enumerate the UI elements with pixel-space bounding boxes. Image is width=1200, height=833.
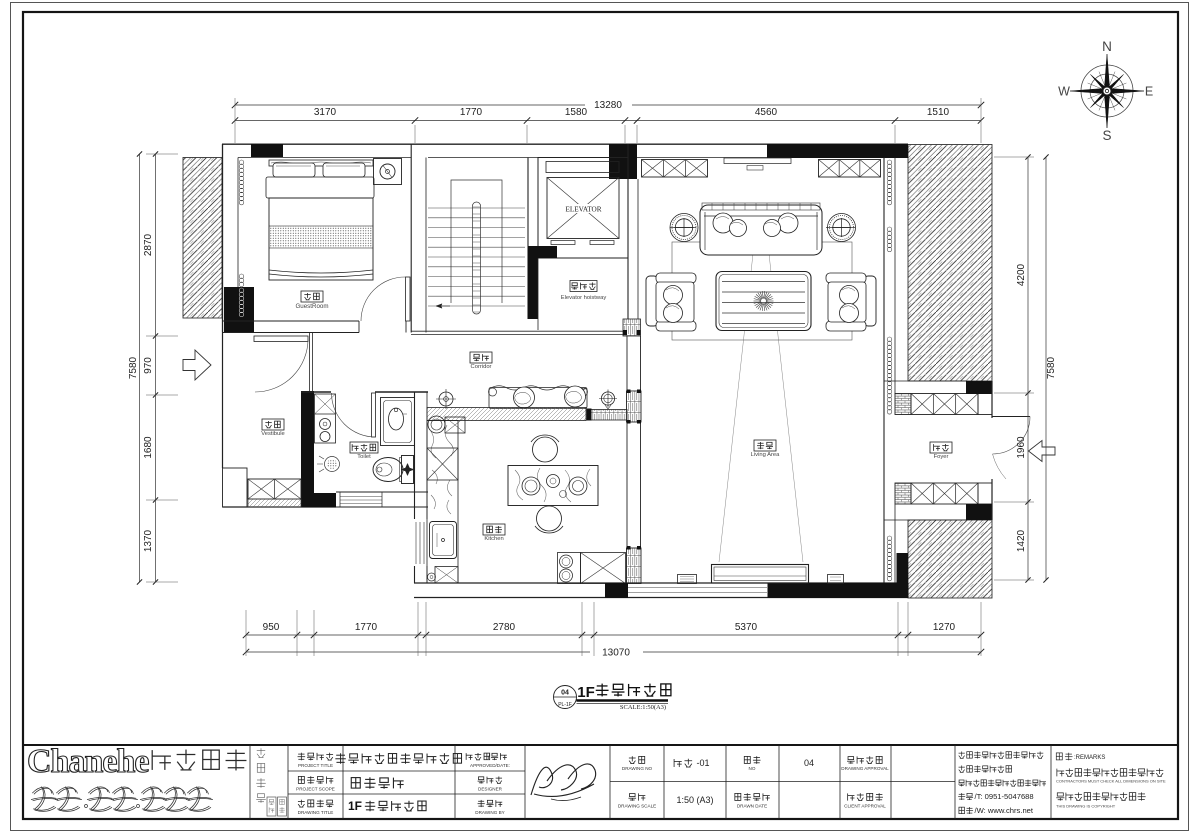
svg-text:DRAWING APPROVAL: DRAWING APPROVAL: [841, 766, 889, 771]
svg-text:2780: 2780: [493, 622, 516, 633]
svg-text:DRAWING NO: DRAWING NO: [622, 766, 653, 771]
svg-text:Elevator hoistway: Elevator hoistway: [561, 295, 607, 301]
svg-text:DRAWING SCALE: DRAWING SCALE: [618, 804, 656, 809]
svg-text:13070: 13070: [602, 648, 630, 659]
svg-text:1420: 1420: [1016, 529, 1027, 552]
svg-text:1960: 1960: [1016, 436, 1027, 459]
svg-text:950: 950: [263, 622, 280, 633]
svg-text:PL-1F: PL-1F: [558, 702, 572, 708]
svg-text:Vestibule: Vestibule: [261, 431, 285, 437]
svg-text:DESIGNER: DESIGNER: [478, 787, 503, 792]
svg-text:1510: 1510: [927, 107, 950, 118]
svg-text:-01: -01: [696, 758, 709, 768]
svg-text:PROJECT SCOPE: PROJECT SCOPE: [296, 787, 335, 792]
svg-text:2870: 2870: [143, 233, 154, 256]
svg-text:APPROVED/DATE:: APPROVED/DATE:: [470, 763, 510, 768]
svg-text:NO: NO: [749, 766, 756, 771]
svg-text:1680: 1680: [143, 436, 154, 459]
svg-text:GuestRoom: GuestRoom: [295, 303, 328, 310]
svg-text:/: /: [488, 754, 490, 761]
svg-text:Toilet: Toilet: [357, 454, 371, 460]
svg-text:5370: 5370: [735, 622, 758, 633]
svg-text:Living Area: Living Area: [751, 452, 780, 458]
svg-text:1:50 (A3): 1:50 (A3): [676, 795, 713, 805]
svg-text:Foyer: Foyer: [934, 454, 949, 460]
svg-text:7580: 7580: [128, 356, 139, 379]
svg-text:N: N: [1102, 39, 1112, 54]
svg-text::REMARKS: :REMARKS: [1074, 755, 1105, 761]
svg-text:Kitchen: Kitchen: [484, 536, 503, 542]
svg-text:1270: 1270: [933, 622, 956, 633]
svg-text:ELEVATOR: ELEVATOR: [565, 206, 601, 214]
svg-text:4560: 4560: [755, 107, 778, 118]
svg-text:4200: 4200: [1016, 263, 1027, 286]
svg-text:04: 04: [561, 690, 569, 697]
svg-text:E: E: [1145, 85, 1153, 99]
svg-text:Corridor: Corridor: [471, 364, 492, 370]
svg-text:7580: 7580: [1046, 356, 1057, 379]
svg-text:DRAWING TITLE: DRAWING TITLE: [298, 810, 334, 815]
svg-text:1370: 1370: [143, 529, 154, 552]
svg-text:1770: 1770: [355, 622, 378, 633]
svg-text:1580: 1580: [565, 107, 588, 118]
svg-text:PROJECT TITLE: PROJECT TITLE: [298, 763, 333, 768]
svg-text:S: S: [1102, 128, 1111, 143]
svg-text:1F: 1F: [577, 684, 595, 701]
svg-text:/W: www.chrs.net: /W: www.chrs.net: [975, 806, 1034, 815]
svg-text:DRAWING BY: DRAWING BY: [475, 810, 504, 815]
svg-text:W: W: [1058, 85, 1070, 99]
svg-text:1770: 1770: [460, 107, 483, 118]
svg-text:3170: 3170: [314, 107, 337, 118]
svg-text:1F: 1F: [348, 799, 362, 813]
svg-text:13280: 13280: [594, 100, 622, 111]
svg-text:CLIENT APPROVAL: CLIENT APPROVAL: [844, 804, 886, 809]
svg-text:SCALE:1:50(A3): SCALE:1:50(A3): [620, 704, 666, 711]
svg-text:CONTRACTORS MUST CHECK ALL DIM: CONTRACTORS MUST CHECK ALL DIMENSIONS ON…: [1056, 779, 1166, 784]
svg-text:DRAWN DATE: DRAWN DATE: [737, 804, 767, 809]
svg-text:Chanehe: Chanehe: [27, 743, 149, 780]
svg-text:THIS DRAWING IS COPYRIGHT: THIS DRAWING IS COPYRIGHT: [1056, 804, 1116, 809]
svg-text:04: 04: [804, 758, 814, 768]
svg-text:970: 970: [143, 357, 154, 374]
svg-text:/T: 0951-5047688: /T: 0951-5047688: [975, 792, 1034, 801]
